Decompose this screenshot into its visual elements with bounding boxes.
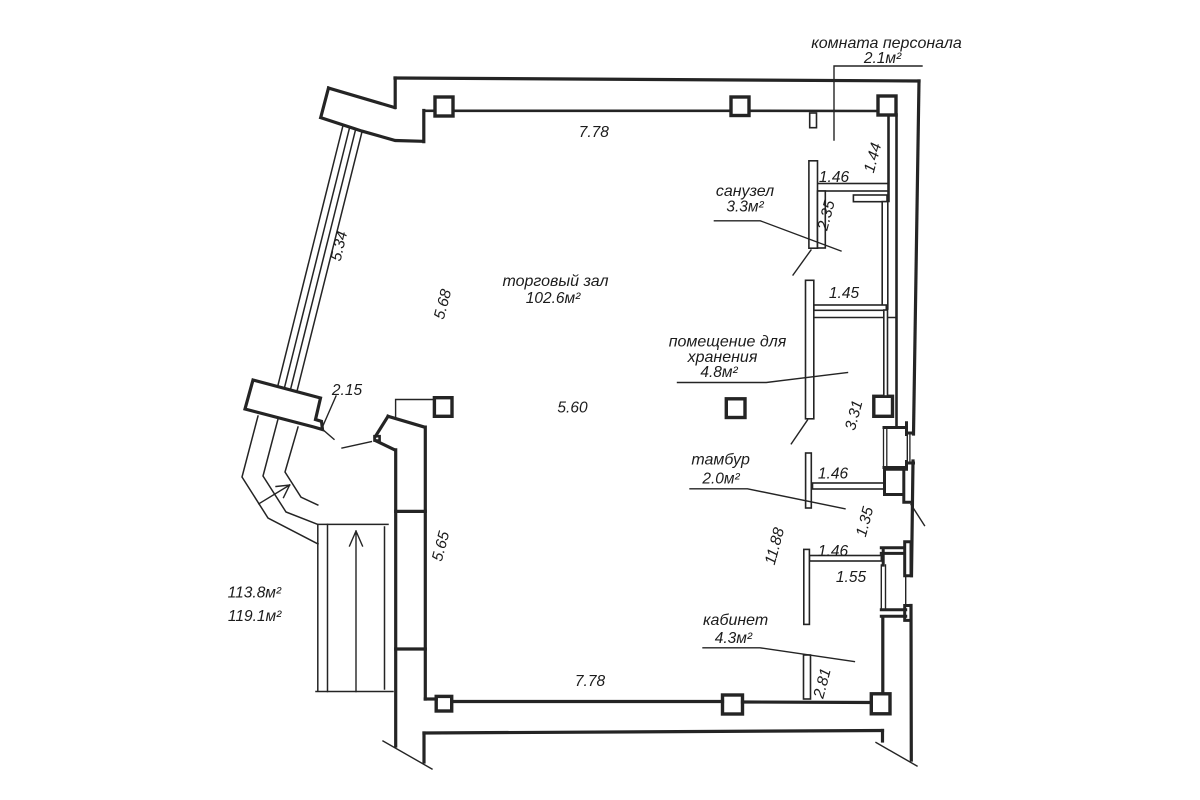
svg-text:5.60: 5.60: [557, 400, 588, 417]
svg-text:11.88: 11.88: [762, 526, 788, 567]
svg-text:1.46: 1.46: [819, 169, 850, 186]
svg-text:1.45: 1.45: [829, 285, 860, 302]
svg-text:5.65: 5.65: [429, 529, 453, 563]
svg-text:торговый зал: торговый зал: [502, 273, 608, 290]
svg-text:1.46: 1.46: [818, 466, 849, 483]
svg-text:3.3м²: 3.3м²: [726, 199, 764, 216]
svg-text:1.46: 1.46: [818, 543, 849, 560]
svg-text:119.1м²: 119.1м²: [228, 608, 282, 625]
svg-text:помещение для: помещение для: [669, 334, 787, 351]
svg-text:2.15: 2.15: [331, 382, 363, 399]
svg-text:113.8м²: 113.8м²: [228, 585, 282, 602]
svg-text:7.78: 7.78: [575, 673, 606, 690]
svg-text:1.44: 1.44: [861, 141, 885, 175]
svg-text:3.31: 3.31: [842, 399, 866, 433]
svg-text:кабинет: кабинет: [703, 612, 768, 629]
svg-text:5.68: 5.68: [431, 287, 455, 321]
svg-text:2.1м²: 2.1м²: [863, 50, 902, 67]
svg-text:санузел: санузел: [716, 183, 774, 200]
svg-text:2.81: 2.81: [810, 667, 834, 702]
svg-text:102.6м²: 102.6м²: [526, 290, 581, 307]
svg-text:тамбур: тамбур: [691, 452, 750, 469]
svg-text:4.8м²: 4.8м²: [700, 364, 738, 381]
svg-text:2.0м²: 2.0м²: [701, 471, 740, 488]
svg-text:4.3м²: 4.3м²: [715, 630, 753, 647]
svg-text:1.55: 1.55: [836, 569, 867, 586]
svg-text:5.34: 5.34: [328, 229, 351, 263]
svg-text:1.35: 1.35: [853, 505, 877, 539]
svg-text:7.78: 7.78: [579, 124, 610, 141]
